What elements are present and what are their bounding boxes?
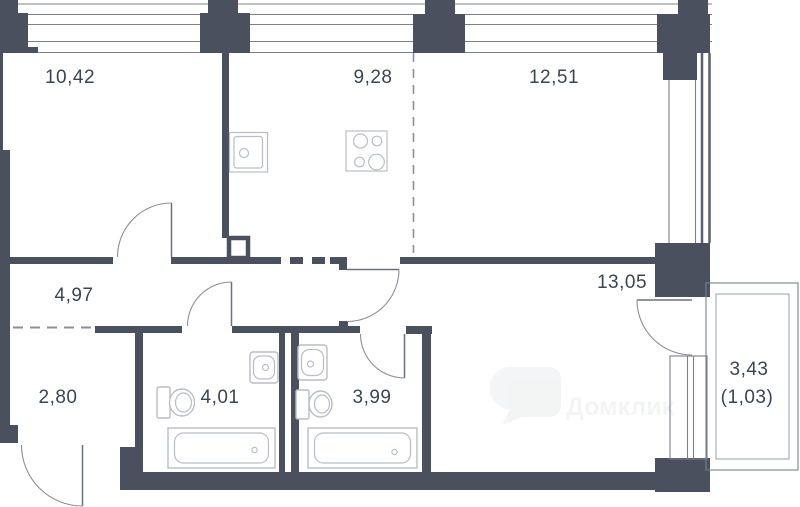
room-label-kitchen: 9,28 <box>354 67 393 88</box>
toilet-bathroom-1 <box>157 387 195 418</box>
pillar-mid-right <box>655 243 710 297</box>
room-label-living-zone: 12,51 <box>529 67 579 88</box>
toilet-bathroom-2 <box>296 390 332 419</box>
door-balcony <box>637 300 692 355</box>
room-labels: 10,42 9,28 12,51 4,97 13,05 2,80 4,01 3,… <box>39 67 774 408</box>
room-label-entry-hall: 2,80 <box>39 387 78 408</box>
floor-plan: Домклик <box>0 0 800 507</box>
bathtub-bathroom-1 <box>168 428 275 468</box>
left-wall <box>0 53 18 443</box>
balcony-window <box>670 356 707 459</box>
stove <box>346 131 387 171</box>
door-kitchen-hallway <box>347 270 399 322</box>
room-label-bathroom-2: 3,99 <box>353 387 392 408</box>
pillar-top-left <box>0 0 38 53</box>
sink-bathroom-2 <box>298 345 327 380</box>
room-label-bedroom: 10,42 <box>45 67 95 88</box>
door-bathroom-1 <box>188 282 232 326</box>
door-entrance <box>22 445 83 506</box>
room-label-master-room: 13,05 <box>597 272 647 293</box>
kitchen-sink <box>230 133 268 173</box>
sink-bathroom-1 <box>250 352 278 383</box>
watermark-logo: Домклик <box>489 367 674 425</box>
room-label-balcony: 3,43 <box>730 359 769 380</box>
room-label-hallway: 4,97 <box>55 285 94 306</box>
right-facade-window <box>669 53 710 243</box>
vent-shaft <box>229 238 248 258</box>
top-window-band <box>0 4 712 53</box>
watermark-text: Домклик <box>566 393 675 421</box>
floor-plan-canvas: Домклик <box>0 0 800 507</box>
door-bathroom-2 <box>361 334 405 378</box>
pillar-top-2 <box>200 0 250 53</box>
pillar-top-3 <box>413 0 465 53</box>
room-label-bathroom-1: 4,01 <box>201 387 240 408</box>
door-bedroom <box>118 203 172 257</box>
room-label-balcony-coeff: (1,03) <box>721 387 774 408</box>
bathtub-bathroom-2 <box>308 428 417 468</box>
